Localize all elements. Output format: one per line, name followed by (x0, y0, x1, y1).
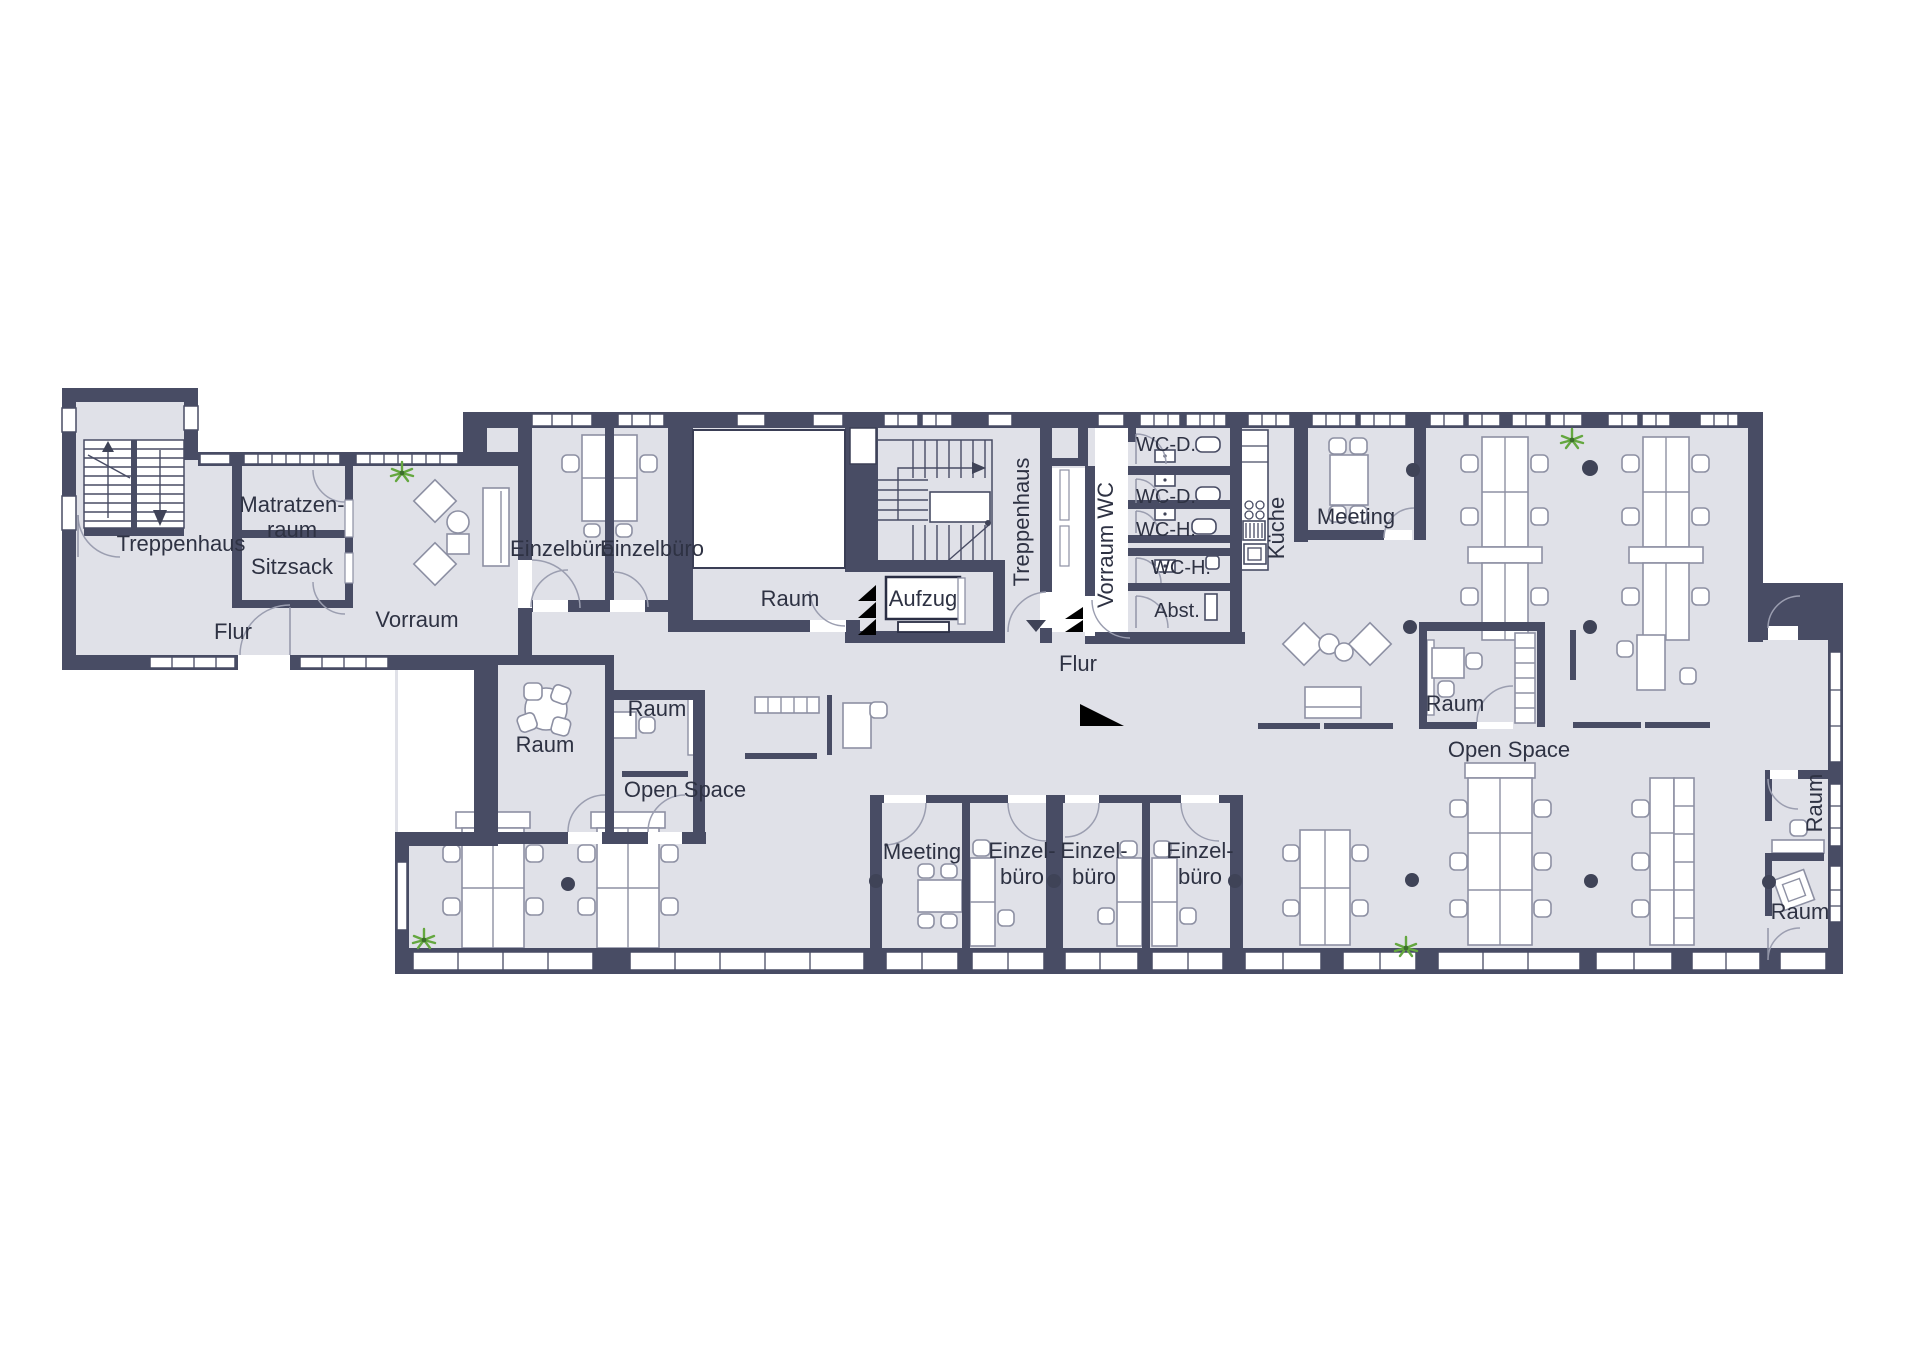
label-open-space-right: Open Space (1448, 737, 1570, 762)
label-raum-small-1: Raum (516, 732, 575, 757)
label-raum-right-bottom: Raum (1771, 899, 1830, 924)
label-einzelbuero-top-1: Einzelbüro (510, 536, 614, 561)
label-matratzenraum-1: Matratzen- (239, 492, 344, 517)
label-raum-center: Raum (761, 586, 820, 611)
label-meeting-top: Meeting (1317, 504, 1395, 529)
raum1-table (516, 683, 572, 737)
label-einzelbuero-b3-1: Einzel- (1166, 838, 1233, 863)
label-matratzenraum-2: raum (267, 517, 317, 542)
label-treppenhaus-left: Treppenhaus (117, 531, 246, 556)
label-wc-h-2: WC-H. (1151, 557, 1211, 579)
label-einzelbuero-b1-2: büro (1000, 864, 1044, 889)
stairs-center (877, 440, 992, 567)
label-einzelbuero-b2-1: Einzel- (1060, 838, 1127, 863)
label-einzelbuero-b3-2: büro (1178, 864, 1222, 889)
label-flur-center: Flur (1059, 651, 1097, 676)
label-sitzsack: Sitzsack (251, 554, 334, 579)
label-treppenhaus-center: Treppenhaus (1009, 458, 1034, 587)
label-einzelbuero-b2-2: büro (1072, 864, 1116, 889)
label-raum-right-top: Raum (1802, 774, 1827, 833)
label-wc-d-2: WC-D. (1136, 486, 1196, 508)
label-raum-small-2: Raum (628, 696, 687, 721)
label-vorraum-wc: Vorraum WC (1093, 482, 1118, 608)
label-aufzug: Aufzug (889, 586, 958, 611)
label-wc-d-1: WC-D. (1136, 434, 1196, 456)
label-einzelbuero-top-2: Einzelbüro (600, 536, 704, 561)
label-open-space-left: Open Space (624, 777, 746, 802)
label-meeting-bottom: Meeting (883, 839, 961, 864)
label-kueche: Küche (1264, 497, 1289, 559)
floor-plan-page: Treppenhaus Matratzen- raum Sitzsack Flu… (0, 0, 1920, 1357)
label-vorraum: Vorraum (375, 607, 458, 632)
floor-plan-drawing: Treppenhaus Matratzen- raum Sitzsack Flu… (0, 0, 1920, 1357)
label-flur-left: Flur (214, 619, 252, 644)
label-einzelbuero-b1-1: Einzel- (988, 838, 1055, 863)
label-raum-mid: Raum (1426, 691, 1485, 716)
label-wc-h-1: WC-H. (1136, 519, 1196, 541)
stairs-left-tower (84, 440, 184, 528)
label-abstellraum: Abst. (1154, 600, 1200, 622)
